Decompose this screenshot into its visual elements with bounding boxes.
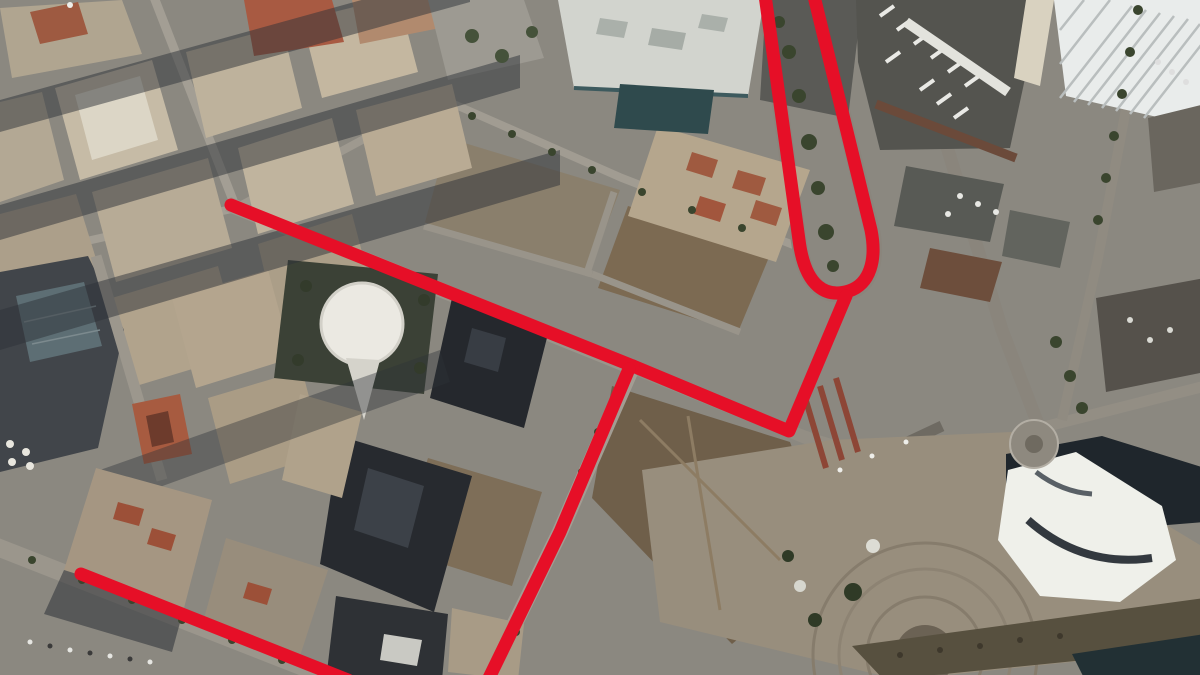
tree	[782, 45, 796, 59]
tree	[801, 134, 817, 150]
tree	[811, 181, 825, 195]
parked-car	[108, 654, 113, 659]
tree	[818, 224, 834, 240]
tree	[468, 112, 476, 120]
parked-car	[1169, 69, 1175, 75]
plaza-umbrella	[26, 462, 34, 470]
tree	[418, 294, 430, 306]
tree	[827, 260, 839, 272]
roof-detail	[1127, 317, 1133, 323]
parked-car	[28, 640, 33, 645]
satellite-map	[0, 0, 1200, 675]
parked-car	[148, 660, 153, 665]
parked-car	[128, 657, 133, 662]
map-frame	[0, 0, 1200, 675]
shore-rock	[897, 652, 903, 658]
tree	[1117, 89, 1127, 99]
car-on-road	[904, 440, 909, 445]
tree	[414, 362, 426, 374]
station-side-lot	[1148, 104, 1200, 192]
roof-detail	[1147, 337, 1153, 343]
parked-car	[88, 651, 93, 656]
parked-car	[1183, 79, 1189, 85]
roundabout-island	[1025, 435, 1043, 453]
department-store-roof	[558, 0, 764, 96]
teal-roof-building	[614, 84, 714, 134]
parked-car	[68, 648, 73, 653]
tree	[508, 130, 516, 138]
tree	[1050, 336, 1062, 348]
tree	[1109, 131, 1119, 141]
parked-car	[1155, 59, 1161, 65]
tree	[1076, 402, 1088, 414]
tree	[28, 556, 36, 564]
tree	[300, 280, 312, 292]
tree	[1133, 5, 1143, 15]
shore-rock	[937, 647, 943, 653]
tree	[1093, 215, 1103, 225]
tree	[292, 354, 304, 366]
tree	[688, 206, 696, 214]
parked-van	[957, 193, 963, 199]
roof-detail	[1167, 327, 1173, 333]
tree	[1101, 173, 1111, 183]
parked-van	[993, 209, 999, 215]
tree	[844, 583, 862, 601]
tree	[1125, 47, 1135, 57]
car-on-road	[838, 468, 843, 473]
tree	[808, 613, 822, 627]
tree	[792, 89, 806, 103]
shore-rock	[1017, 637, 1023, 643]
plaza-umbrella	[6, 440, 14, 448]
shore-rock	[1057, 633, 1063, 639]
tree	[638, 188, 646, 196]
parked-car	[48, 644, 53, 649]
shore-rock	[977, 643, 983, 649]
tree	[738, 224, 746, 232]
tree	[548, 148, 556, 156]
tree	[1064, 370, 1076, 382]
car-on-road	[870, 454, 875, 459]
tree	[782, 550, 794, 562]
tree	[588, 166, 596, 174]
parked-van	[975, 201, 981, 207]
fountain	[866, 539, 880, 553]
plaza-umbrella	[8, 458, 16, 466]
tree	[495, 49, 509, 63]
tree	[526, 26, 538, 38]
parked-van	[945, 211, 951, 217]
tree	[465, 29, 479, 43]
fountain	[794, 580, 806, 592]
plaza-umbrella	[22, 448, 30, 456]
parked-car	[67, 2, 73, 8]
